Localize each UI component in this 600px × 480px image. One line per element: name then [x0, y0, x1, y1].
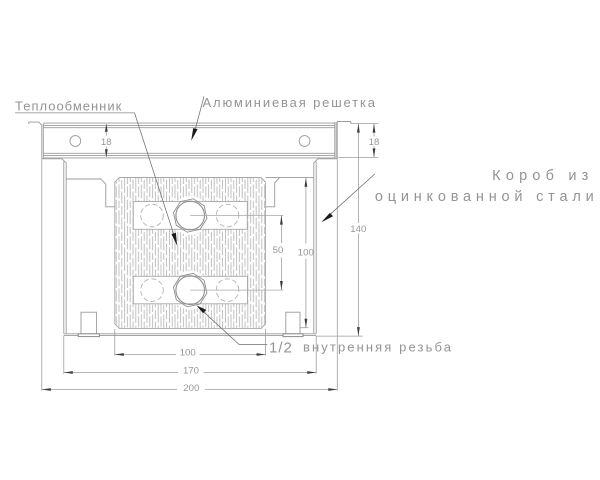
svg-text:140: 140 [350, 224, 366, 235]
svg-text:Теплообменник: Теплообменник [15, 99, 122, 114]
svg-text:18: 18 [369, 137, 380, 148]
svg-text:100: 100 [298, 248, 314, 259]
svg-text:18: 18 [101, 137, 112, 148]
svg-text:внутренняя резьба: внутренняя резьба [303, 340, 453, 355]
svg-text:100: 100 [180, 347, 196, 358]
svg-text:Короб из: Короб из [492, 168, 593, 184]
svg-text:Алюминиевая решетка: Алюминиевая решетка [203, 95, 377, 110]
svg-text:50: 50 [273, 245, 284, 256]
svg-text:1/2: 1/2 [269, 339, 293, 356]
svg-text:оцинкованной стали: оцинкованной стали [375, 189, 599, 205]
svg-text:170: 170 [183, 365, 199, 376]
svg-text:200: 200 [183, 383, 199, 394]
